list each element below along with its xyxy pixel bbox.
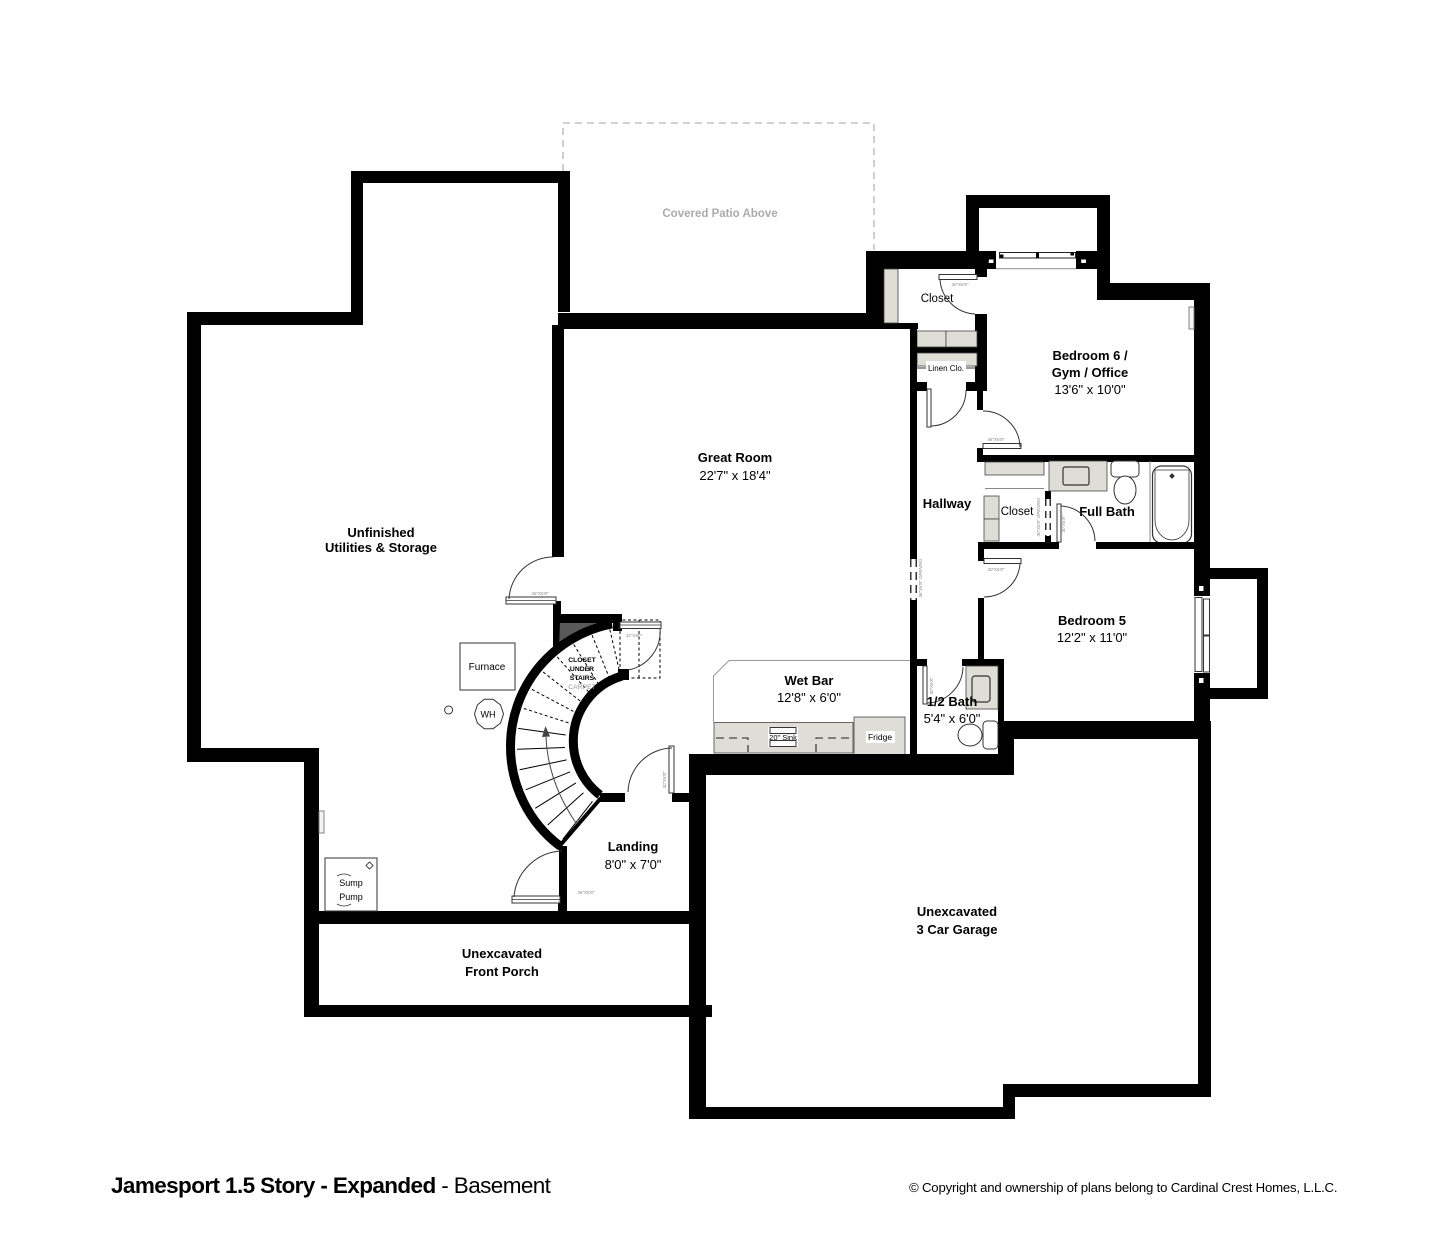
svg-text:36"X6'8": 36"X6'8" bbox=[531, 591, 548, 596]
svg-text:Furnace: Furnace bbox=[469, 662, 506, 673]
svg-text:Closet: Closet bbox=[1001, 506, 1034, 518]
svg-text:Bedroom 6 /: Bedroom 6 / bbox=[1052, 348, 1128, 363]
svg-text:Covered Patio Above: Covered Patio Above bbox=[662, 208, 777, 220]
svg-text:12'8" x 6'0": 12'8" x 6'0" bbox=[777, 690, 841, 705]
svg-text:© Copyright and ownership of p: © Copyright and ownership of plans belon… bbox=[909, 1180, 1337, 1195]
svg-text:Jamesport 1.5 Story - Expanded: Jamesport 1.5 Story - Expanded - Basemen… bbox=[111, 1173, 552, 1198]
svg-text:STAIRS: STAIRS bbox=[570, 675, 595, 682]
svg-text:Utilities & Storage: Utilities & Storage bbox=[325, 540, 437, 555]
svg-text:Great Room: Great Room bbox=[698, 450, 772, 465]
svg-text:Wet Bar: Wet Bar bbox=[785, 673, 834, 688]
svg-text:3 Car Garage: 3 Car Garage bbox=[917, 922, 998, 937]
svg-text:Unexcavated: Unexcavated bbox=[917, 904, 997, 919]
svg-text:12'2" x 11'0": 12'2" x 11'0" bbox=[1057, 630, 1128, 645]
svg-text:Gym / Office: Gym / Office bbox=[1052, 365, 1129, 380]
svg-text:1/2 Bath: 1/2 Bath bbox=[927, 694, 978, 709]
svg-text:Unexcavated: Unexcavated bbox=[462, 946, 542, 961]
svg-text:13'6" x 10'0": 13'6" x 10'0" bbox=[1054, 382, 1126, 397]
svg-text:Sump: Sump bbox=[339, 878, 363, 888]
svg-text:30"X6'8": 30"X6'8" bbox=[1061, 515, 1066, 532]
svg-text:Unfinished: Unfinished bbox=[347, 525, 414, 540]
svg-text:36"X6'8": 36"X6'8" bbox=[577, 890, 594, 895]
svg-text:UNDER: UNDER bbox=[570, 666, 594, 673]
svg-text:20" Sink: 20" Sink bbox=[769, 733, 797, 742]
svg-text:Front Porch: Front Porch bbox=[465, 964, 539, 979]
svg-text:30"X6'8": 30"X6'8" bbox=[662, 771, 667, 788]
svg-text:5'4" x 6'0": 5'4" x 6'0" bbox=[924, 711, 981, 726]
svg-text:48"X6'8": 48"X6'8" bbox=[987, 437, 1004, 442]
svg-text:Hallway: Hallway bbox=[923, 496, 972, 511]
svg-text:Full Bath: Full Bath bbox=[1079, 504, 1135, 519]
svg-text:22'7" x 18'4": 22'7" x 18'4" bbox=[699, 468, 771, 483]
svg-text:Pump: Pump bbox=[339, 892, 363, 902]
svg-text:WH: WH bbox=[481, 710, 496, 720]
svg-text:30"X6'8" OPENING: 30"X6'8" OPENING bbox=[1036, 497, 1041, 537]
svg-text:CARPET: CARPET bbox=[568, 684, 596, 691]
svg-text:Bedroom 5: Bedroom 5 bbox=[1058, 613, 1126, 628]
svg-text:30"X6'8": 30"X6'8" bbox=[987, 567, 1004, 572]
svg-text:30"X6'8": 30"X6'8" bbox=[951, 282, 968, 287]
svg-text:Closet: Closet bbox=[921, 293, 954, 305]
svg-text:Landing: Landing bbox=[608, 839, 659, 854]
svg-text:30"X6'8": 30"X6'8" bbox=[929, 677, 934, 694]
svg-text:CLOSET: CLOSET bbox=[568, 657, 596, 664]
svg-text:Fridge: Fridge bbox=[868, 732, 892, 742]
svg-text:Linen Clo.: Linen Clo. bbox=[928, 364, 964, 373]
svg-text:8'0" x 7'0": 8'0" x 7'0" bbox=[605, 857, 662, 872]
svg-text:36"X6'8" OPENING: 36"X6'8" OPENING bbox=[918, 558, 923, 598]
svg-text:32"X80": 32"X80" bbox=[626, 633, 643, 638]
